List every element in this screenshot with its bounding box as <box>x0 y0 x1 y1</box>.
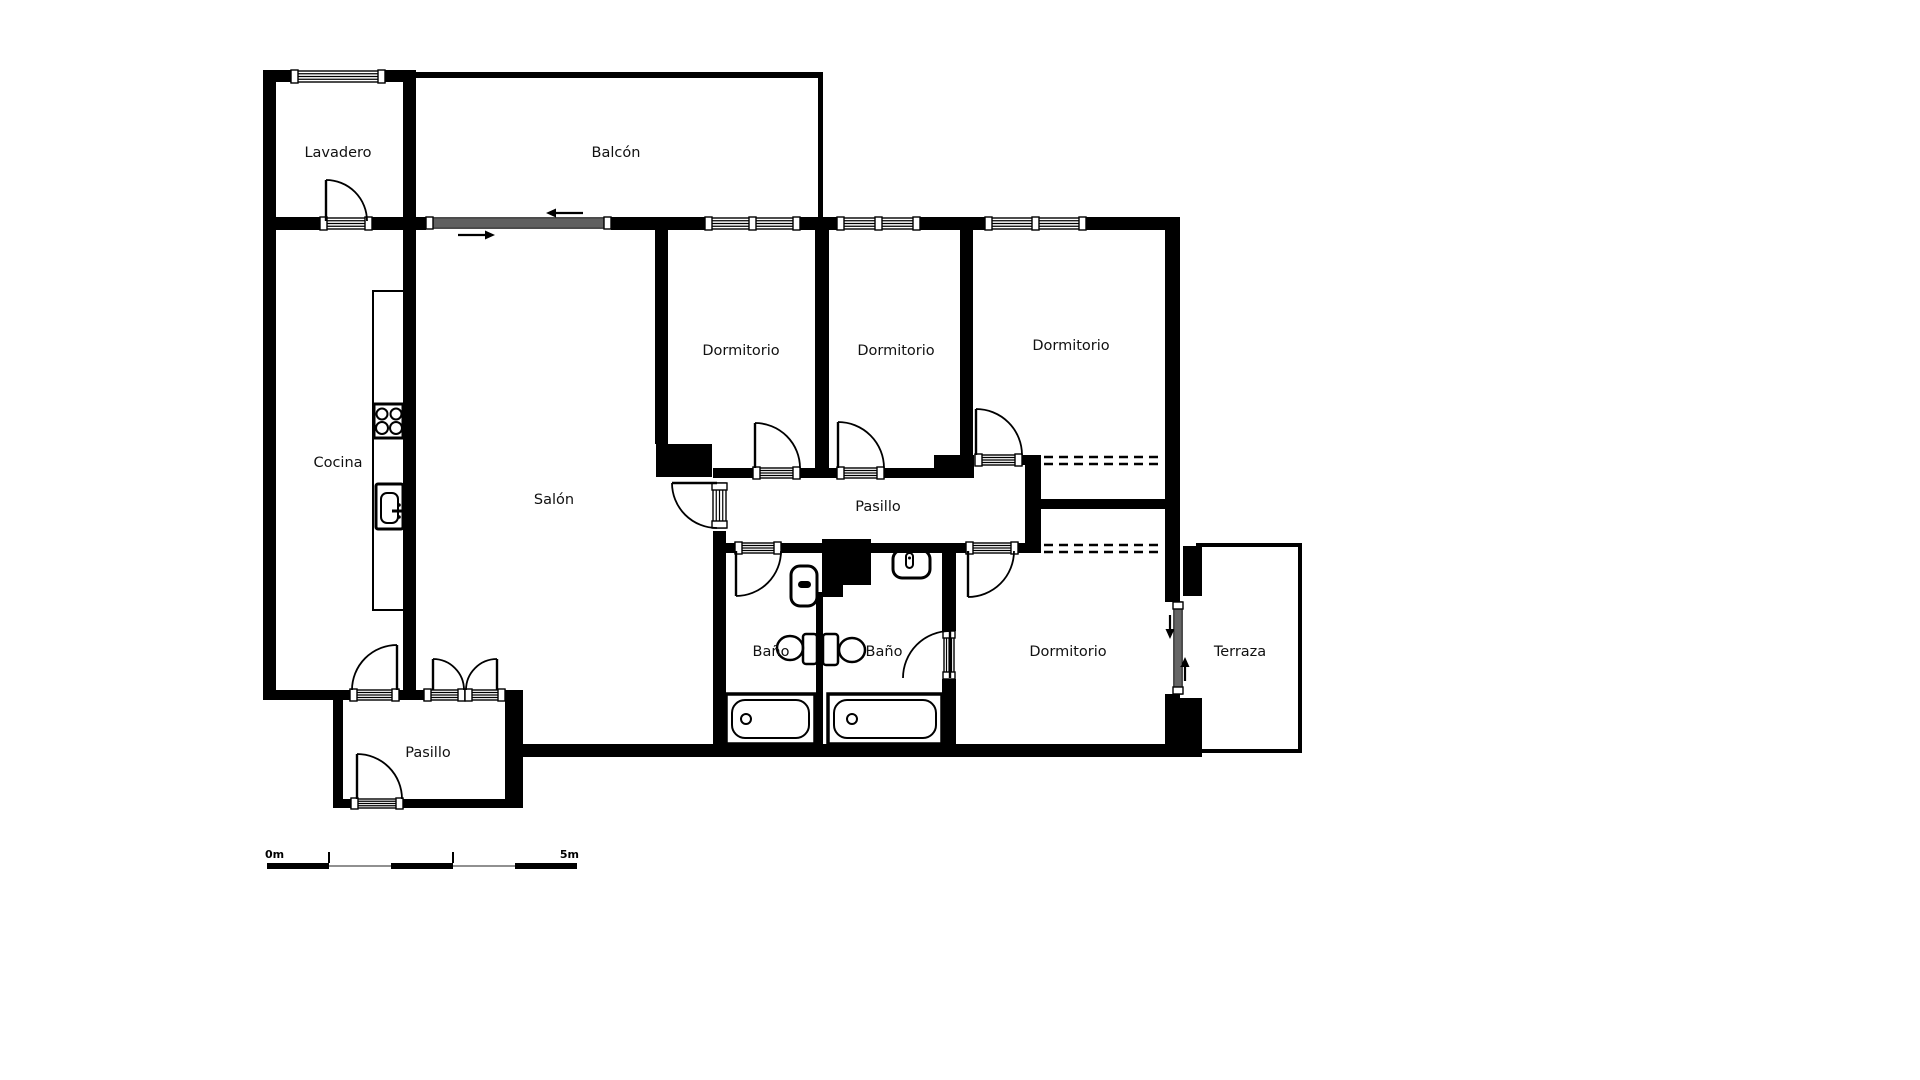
scale-bar-segment <box>391 863 453 869</box>
scale-bar-zero-label: 0m <box>265 848 284 861</box>
cocina-door-threshold <box>350 689 399 701</box>
lavadero-door-threshold <box>320 217 372 230</box>
frame-post <box>1015 454 1022 466</box>
room-label-dormitorio-1: Dormitorio <box>702 343 779 359</box>
toilet-bano1-part <box>798 581 811 588</box>
wall <box>713 468 753 478</box>
wall <box>800 468 837 478</box>
balcony-sliding-door <box>426 217 611 229</box>
wall <box>822 585 843 597</box>
wall <box>655 230 668 444</box>
frame-post <box>350 689 357 701</box>
dormitorio1-door-threshold <box>753 467 800 479</box>
frame-post <box>458 689 465 701</box>
frame-post <box>1032 217 1039 230</box>
kitchen-sink-part <box>397 503 401 507</box>
wall <box>713 531 726 744</box>
room-label-dormitorio-4: Dormitorio <box>1029 644 1106 660</box>
frame-post <box>351 798 358 809</box>
frame-post <box>793 467 800 479</box>
wall <box>333 799 351 808</box>
double-door-threshold-left <box>424 689 465 701</box>
dormitorio3-door-threshold <box>975 454 1022 466</box>
room-label-dormitorio-3: Dormitorio <box>1032 338 1109 354</box>
frame-post <box>424 689 431 701</box>
wall <box>403 799 523 808</box>
wall <box>816 592 823 744</box>
dormitorio2-window <box>837 217 920 230</box>
double-door-threshold-right <box>465 689 505 701</box>
frame-post <box>365 217 372 230</box>
wall <box>416 217 426 230</box>
frame-post <box>1079 217 1086 230</box>
scale-bar-segment-thin <box>329 865 391 867</box>
wall <box>713 543 735 553</box>
room-label-lavadero: Lavadero <box>304 145 371 161</box>
wall <box>1172 698 1202 757</box>
dormitorio2-door-threshold <box>837 467 884 479</box>
wall <box>960 230 973 455</box>
dormitorio1-window <box>705 217 800 230</box>
floor-plan: LavaderoBalcónCocinaSalónDormitorioDormi… <box>0 0 1920 1080</box>
lavadero-window <box>291 70 385 83</box>
wall <box>815 230 829 468</box>
dormitorio4-door-threshold <box>966 542 1018 554</box>
room-label-pasillo-central: Pasillo <box>855 499 901 515</box>
wall <box>523 744 1202 757</box>
wall <box>800 217 837 230</box>
frame-post <box>774 542 781 554</box>
wall <box>942 679 956 744</box>
wall <box>818 72 823 223</box>
frame-post <box>875 217 882 230</box>
wall <box>934 455 974 478</box>
wall <box>781 543 822 553</box>
room-label-pasillo-entrada: Pasillo <box>405 745 451 761</box>
wall <box>1018 543 1041 553</box>
wall <box>372 217 416 230</box>
room-label-balcon: Balcón <box>592 145 641 161</box>
wall <box>656 444 712 477</box>
scale-bar-end-label: 5m <box>560 848 579 861</box>
frame-post <box>985 217 992 230</box>
wall <box>1183 546 1202 596</box>
wall <box>942 553 956 631</box>
room-label-salon: Salón <box>534 492 574 508</box>
wall <box>611 217 705 230</box>
terraza-sliding-door <box>1173 602 1183 694</box>
wall <box>416 72 818 78</box>
frame-post <box>465 689 472 701</box>
room-label-cocina: Cocina <box>313 455 362 471</box>
scale-bar-segment <box>267 863 329 869</box>
frame-post <box>753 467 760 479</box>
kitchen-sink-part <box>397 515 401 519</box>
scale-bar-segment-thin <box>453 865 515 867</box>
frame-post <box>712 521 727 528</box>
wall <box>263 70 291 82</box>
frame-post <box>1173 687 1183 694</box>
wall <box>1165 222 1180 602</box>
frame-post <box>426 217 433 229</box>
frame-post <box>837 467 844 479</box>
wall <box>920 217 985 230</box>
background <box>0 0 1920 1080</box>
frame-post <box>749 217 756 230</box>
wall <box>263 70 276 700</box>
frame-post <box>392 689 399 701</box>
bano1-door-threshold <box>735 542 781 554</box>
frame-post <box>913 217 920 230</box>
room-label-terraza: Terraza <box>1213 644 1266 660</box>
room-label-bano-2: Baño <box>866 644 903 660</box>
frame-post <box>975 454 982 466</box>
room-label-dormitorio-2: Dormitorio <box>857 343 934 359</box>
frame-post <box>604 217 611 229</box>
room-label-bano-1: Baño <box>753 644 790 660</box>
wall <box>333 690 343 808</box>
toilet-bano2-part <box>908 557 911 560</box>
wall <box>822 539 871 585</box>
salon-door-threshold <box>712 483 727 528</box>
frame-post <box>877 467 884 479</box>
wall <box>399 690 424 700</box>
dormitorio3-window <box>985 217 1086 230</box>
scale-bar-segment <box>515 863 577 869</box>
frame-post <box>498 689 505 701</box>
wall <box>263 217 320 230</box>
frame-post <box>396 798 403 809</box>
wall <box>505 690 523 808</box>
frame-post <box>837 217 844 230</box>
frame-post <box>1173 602 1183 609</box>
entrance-door-threshold <box>351 798 403 809</box>
frame-post <box>378 70 385 83</box>
frame-post <box>291 70 298 83</box>
floor-plan-svg: LavaderoBalcónCocinaSalónDormitorioDormi… <box>0 0 1920 1080</box>
wall <box>1035 499 1176 509</box>
frame-post <box>705 217 712 230</box>
frame-post <box>793 217 800 230</box>
